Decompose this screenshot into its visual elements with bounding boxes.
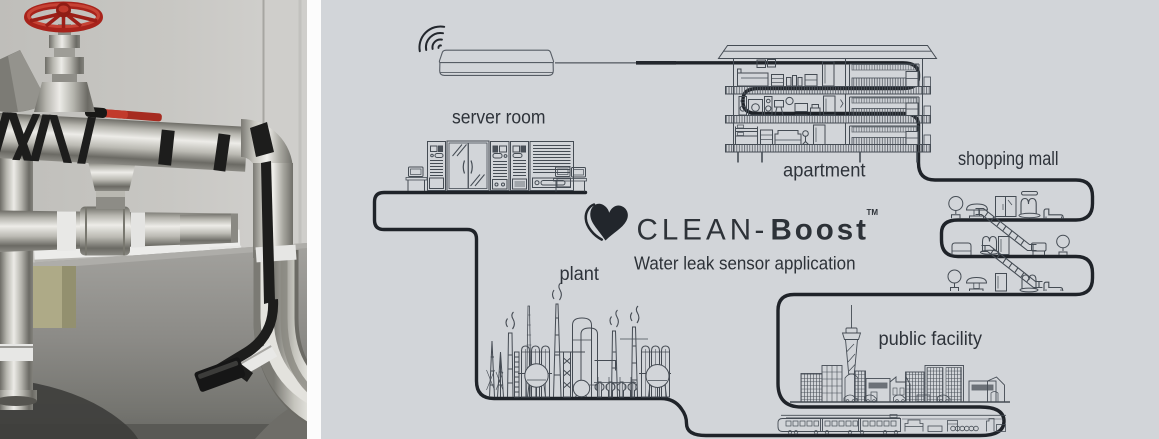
svg-text:Water leak sensor application: Water leak sensor application bbox=[634, 254, 856, 274]
svg-text:TM: TM bbox=[867, 208, 879, 217]
svg-text:-: - bbox=[755, 214, 765, 247]
svg-text:shopping mall: shopping mall bbox=[958, 149, 1059, 170]
svg-text:Boost: Boost bbox=[771, 214, 867, 247]
svg-text:apartment: apartment bbox=[783, 161, 866, 182]
svg-text:server room: server room bbox=[452, 108, 546, 129]
svg-text:public facility: public facility bbox=[879, 329, 983, 350]
svg-text:CLEAN: CLEAN bbox=[637, 214, 752, 247]
svg-text:plant: plant bbox=[560, 264, 600, 285]
